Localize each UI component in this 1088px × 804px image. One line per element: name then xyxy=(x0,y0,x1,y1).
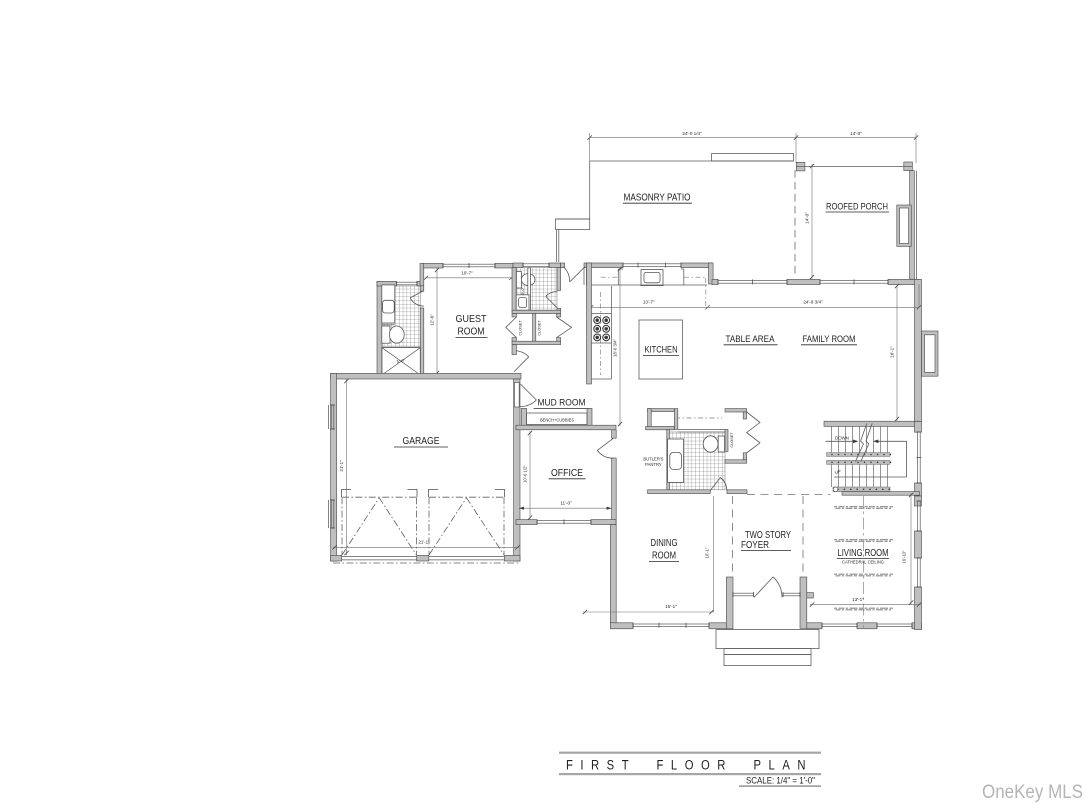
svg-text:MASONRY PATIO: MASONRY PATIO xyxy=(624,193,691,204)
svg-text:CLOSET: CLOSET xyxy=(730,432,734,448)
svg-text:FAMILY ROOM: FAMILY ROOM xyxy=(803,334,856,345)
svg-text:10'-6 1/2": 10'-6 1/2" xyxy=(523,465,528,483)
svg-text:CLOSET: CLOSET xyxy=(538,320,542,336)
svg-text:ROOFED PORCH: ROOFED PORCH xyxy=(826,201,888,212)
svg-text:13'-1": 13'-1" xyxy=(852,597,864,602)
svg-text:21'-1": 21'-1" xyxy=(339,460,344,472)
svg-text:BENCH+CUBBIES: BENCH+CUBBIES xyxy=(540,418,574,423)
svg-text:13'-7": 13'-7" xyxy=(643,299,655,304)
svg-text:GUEST: GUEST xyxy=(456,313,488,325)
svg-text:TABLE AREA: TABLE AREA xyxy=(726,334,776,345)
svg-text:14'-0": 14'-0" xyxy=(850,131,862,136)
svg-text:5'-0": 5'-0" xyxy=(521,287,525,295)
svg-text:GARAGE: GARAGE xyxy=(403,435,440,447)
svg-text:24'-8 3/4": 24'-8 3/4" xyxy=(803,299,823,304)
svg-text:ROOM: ROOM xyxy=(458,326,485,338)
svg-text:DINING: DINING xyxy=(651,538,678,549)
svg-text:KITCHEN: KITCHEN xyxy=(645,345,678,356)
svg-text:LIVING ROOM: LIVING ROOM xyxy=(838,548,889,559)
svg-text:FIRST FLOOR PLAN: FIRST FLOOR PLAN xyxy=(566,758,813,773)
svg-text:DOWN: DOWN xyxy=(835,436,849,441)
svg-text:18'-6 3/4": 18'-6 3/4" xyxy=(612,339,617,357)
svg-text:21'-1": 21'-1" xyxy=(418,540,430,545)
svg-text:11'-0": 11'-0" xyxy=(560,500,572,505)
svg-text:ROOM: ROOM xyxy=(652,551,676,562)
svg-text:FOYER: FOYER xyxy=(741,540,769,551)
svg-text:CLOSET: CLOSET xyxy=(519,320,523,336)
svg-text:CATHEDRAL CEILING: CATHEDRAL CEILING xyxy=(842,560,884,565)
svg-text:SCALE: 1/4" = 1'-0": SCALE: 1/4" = 1'-0" xyxy=(746,776,815,786)
svg-text:15'-1": 15'-1" xyxy=(665,604,677,609)
svg-text:OneKey MLS: OneKey MLS xyxy=(982,782,1083,803)
svg-text:OFFICE: OFFICE xyxy=(551,468,583,479)
svg-text:24'-0 1/4": 24'-0 1/4" xyxy=(682,131,702,136)
svg-text:16'-10": 16'-10" xyxy=(902,550,907,564)
svg-text:16'-1": 16'-1" xyxy=(889,346,894,358)
svg-text:14'-0": 14'-0" xyxy=(804,212,809,224)
svg-text:12'-6": 12'-6" xyxy=(430,314,435,326)
svg-text:TWO STORY: TWO STORY xyxy=(745,530,791,541)
svg-text:10'-7": 10'-7" xyxy=(461,270,473,275)
svg-text:BUTLER'S: BUTLER'S xyxy=(643,456,663,461)
svg-text:PANTRY: PANTRY xyxy=(645,462,662,467)
svg-text:MUD ROOM: MUD ROOM xyxy=(538,397,586,408)
svg-text:10'-1": 10'-1" xyxy=(705,547,710,558)
